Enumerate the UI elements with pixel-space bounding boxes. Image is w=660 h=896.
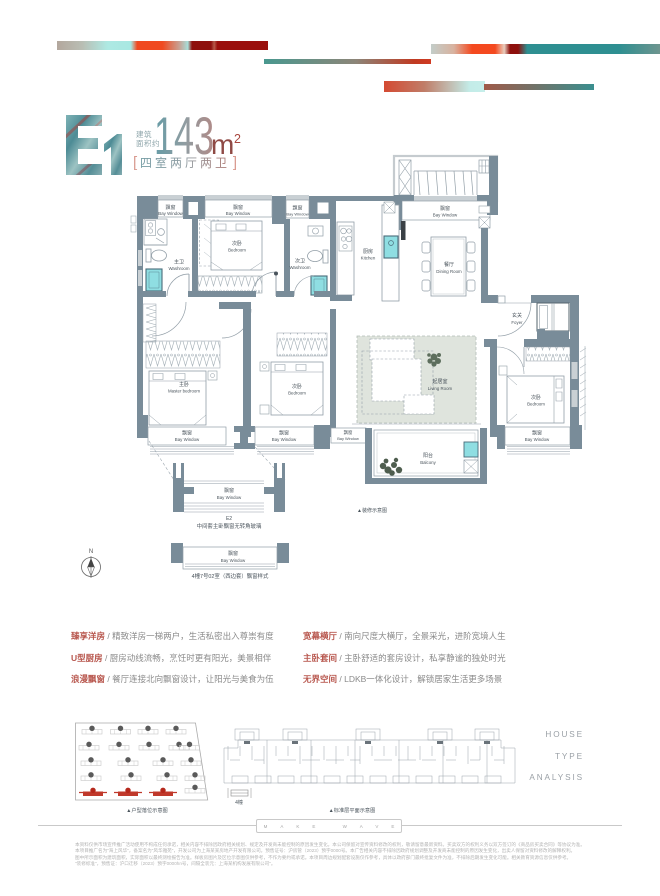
svg-text:Washroom: Washroom: [168, 266, 189, 271]
svg-text:Bay Window: Bay Window: [337, 436, 359, 441]
svg-text:次卧: 次卧: [531, 394, 541, 401]
svg-text:主卫: 主卫: [174, 259, 184, 266]
svg-text:Bedroom: Bedroom: [288, 391, 306, 396]
svg-text:飘窗: 飘窗: [228, 550, 238, 557]
svg-text:Kitchen: Kitchen: [361, 256, 376, 261]
svg-text:飘窗: 飘窗: [440, 205, 450, 212]
svg-text:▲户型落位示意图: ▲户型落位示意图: [126, 806, 167, 814]
svg-text:▲标准层平面示意图: ▲标准层平面示意图: [329, 806, 376, 814]
svg-text:N: N: [89, 549, 93, 555]
svg-text:飘窗: 飘窗: [292, 205, 302, 212]
svg-text:次卧: 次卧: [232, 240, 242, 247]
svg-text:次卧: 次卧: [292, 383, 302, 390]
svg-text:Balcony: Balcony: [420, 460, 436, 465]
svg-text:飘窗: 飘窗: [182, 430, 192, 437]
svg-text:Bay Window: Bay Window: [217, 495, 242, 500]
svg-text:Bay Window: Bay Window: [226, 211, 251, 216]
svg-text:Bay Window: Bay Window: [158, 211, 183, 216]
svg-text:Bedroom: Bedroom: [228, 248, 246, 253]
svg-text:4幢: 4幢: [235, 799, 243, 806]
svg-text:次卫: 次卫: [295, 258, 305, 265]
svg-text:飘窗: 飘窗: [279, 430, 289, 437]
svg-text:2: 2: [234, 132, 241, 146]
svg-text:Living Room: Living Room: [428, 386, 453, 391]
svg-text:主卧: 主卧: [179, 381, 189, 388]
svg-text:起居室: 起居室: [432, 378, 447, 385]
svg-text:Master bedroom: Master bedroom: [168, 389, 200, 394]
svg-text:Washroom: Washroom: [289, 265, 310, 270]
svg-text:Bay Window: Bay Window: [272, 437, 297, 442]
svg-text:Foyer: Foyer: [511, 320, 523, 325]
svg-text:Bay Window: Bay Window: [286, 212, 308, 217]
svg-text:Dining Room: Dining Room: [436, 269, 462, 274]
svg-text:飘窗: 飘窗: [233, 204, 243, 211]
svg-text:中间套主卧飘窗无转角玻璃: 中间套主卧飘窗无转角玻璃: [197, 522, 262, 530]
svg-text:4幢7号02室（西边套）飘窗样式: 4幢7号02室（西边套）飘窗样式: [192, 572, 269, 580]
svg-text:飘窗: 飘窗: [532, 430, 542, 437]
svg-text:厨房: 厨房: [363, 248, 373, 255]
svg-text:Bedroom: Bedroom: [527, 402, 545, 407]
svg-text:Bay Window: Bay Window: [175, 437, 200, 442]
svg-text:飘窗: 飘窗: [344, 429, 353, 436]
svg-text:飘窗: 飘窗: [165, 204, 175, 211]
svg-text:E2: E2: [226, 516, 232, 522]
svg-text:Bay Window: Bay Window: [525, 437, 550, 442]
svg-text:▲装修示意图: ▲装修示意图: [357, 507, 387, 514]
svg-text:玄关: 玄关: [512, 312, 522, 319]
svg-text:阳台: 阳台: [423, 452, 433, 459]
svg-text:Bay Window: Bay Window: [221, 558, 246, 563]
svg-text:Bay Window: Bay Window: [433, 213, 458, 218]
svg-text:餐厅: 餐厅: [444, 261, 454, 268]
svg-text:飘窗: 飘窗: [224, 487, 234, 494]
